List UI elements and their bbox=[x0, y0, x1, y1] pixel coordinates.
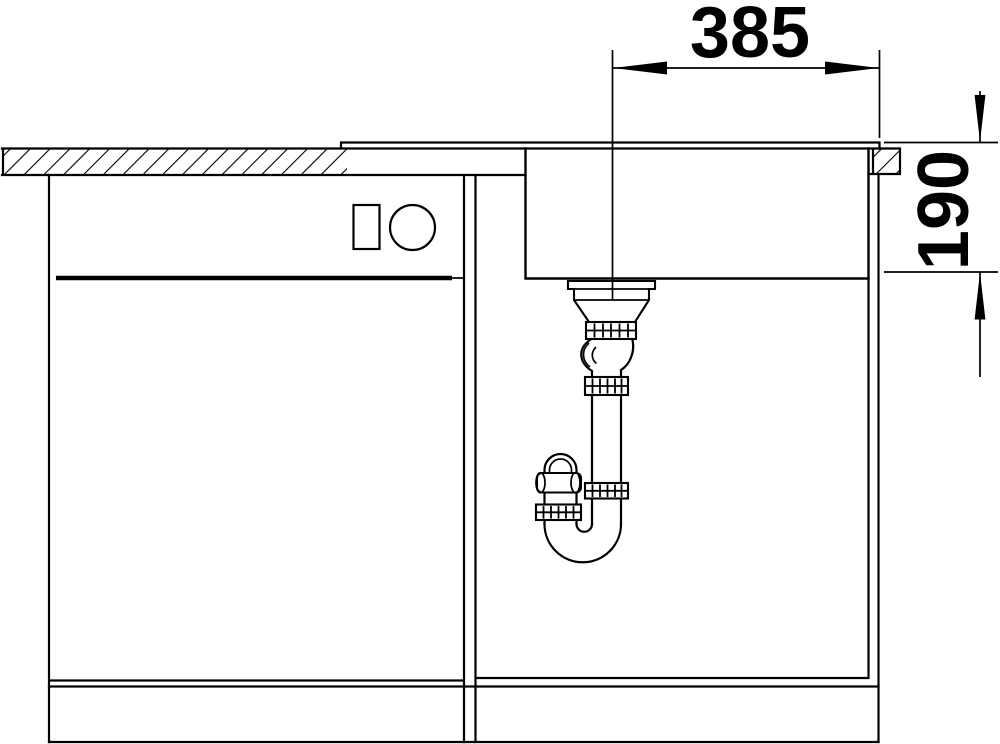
countertop-left-hatched-section bbox=[3, 149, 347, 175]
installation-drawing: 385 190 bbox=[0, 0, 1000, 744]
coupling-nut-2 bbox=[585, 377, 628, 395]
dimension-190-label: 190 bbox=[904, 150, 984, 270]
dimension-385-label: 385 bbox=[690, 0, 810, 73]
coupling-nut-4 bbox=[536, 505, 581, 521]
countertop-right-hatched-section bbox=[873, 149, 900, 174]
coupling-nut-1 bbox=[586, 322, 636, 339]
coupling-nut-3 bbox=[585, 483, 628, 499]
drawing-background bbox=[0, 0, 1000, 744]
